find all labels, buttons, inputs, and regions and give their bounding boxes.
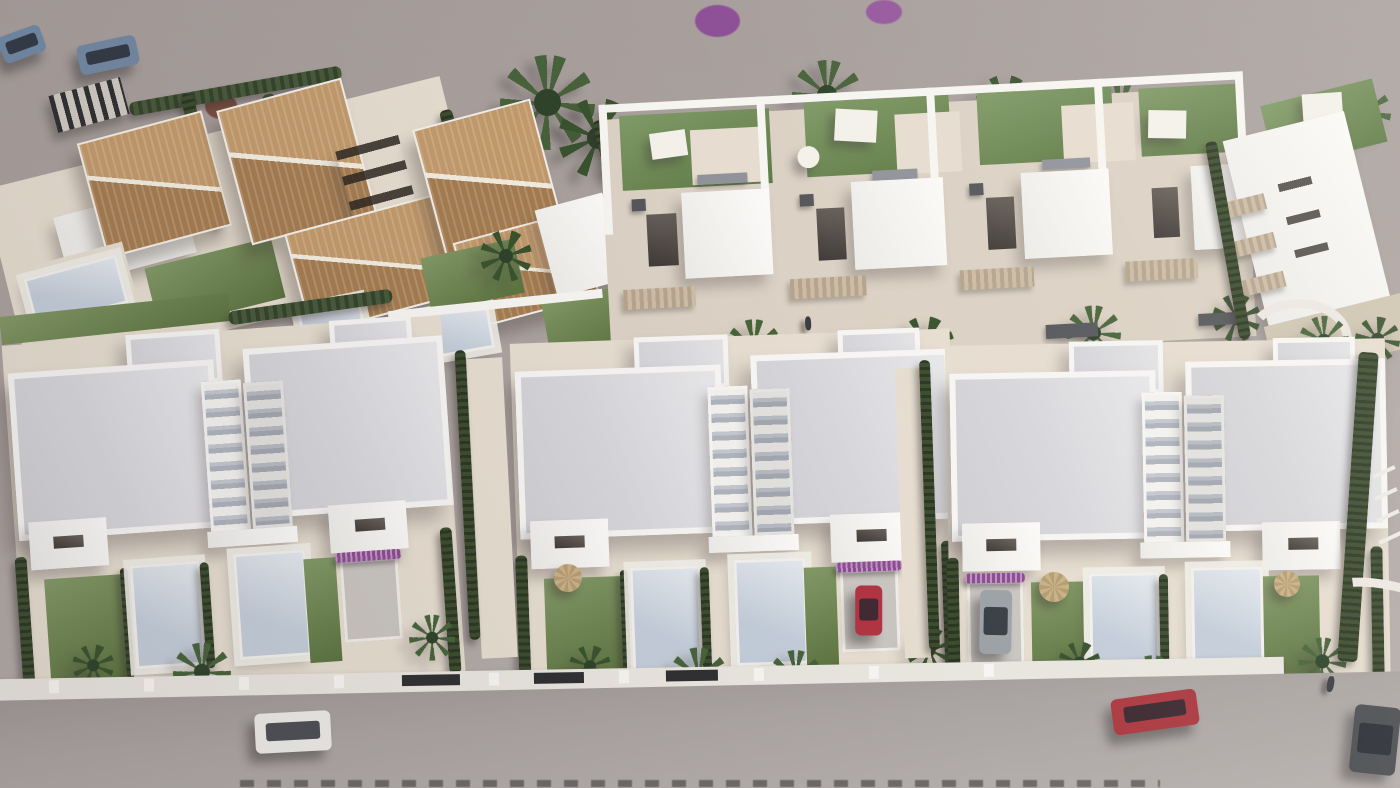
stairwell-void [816, 207, 847, 260]
upper-volume [851, 177, 947, 270]
pergola-roof [48, 77, 129, 133]
balcony-planter [1125, 258, 1198, 282]
balcony-planter [623, 286, 696, 310]
stairwell-void [646, 213, 679, 266]
stair-landing [709, 534, 800, 553]
person-courtyard [805, 316, 812, 330]
upper-volume [1021, 168, 1113, 258]
villa-roof-left [949, 370, 1158, 542]
aerial-render [0, 0, 1400, 788]
bougainvillea-shrub [695, 5, 740, 37]
stairwell-void [986, 196, 1017, 249]
dining-table [1046, 322, 1099, 339]
bottom-edge-artifact [240, 780, 1160, 787]
bbq-unit [969, 183, 984, 196]
gate-wall-dark [402, 674, 460, 686]
gate-pillar [489, 672, 499, 685]
skylight [856, 529, 886, 542]
exterior-stairs [707, 386, 752, 537]
stairwell-void [1152, 187, 1181, 238]
bougainvillea-shrub [866, 0, 902, 24]
balcony-planter [790, 275, 867, 299]
gate-pillar [619, 670, 629, 683]
bbq-unit [799, 194, 814, 207]
skylight [53, 535, 84, 549]
car-red-carport [855, 585, 882, 635]
gate-pillar [754, 668, 764, 681]
palm-tree [480, 230, 532, 282]
gate-pillar [869, 666, 879, 679]
gate-pillar [334, 675, 344, 688]
gate-pillar [49, 680, 59, 693]
car-white-road [254, 710, 332, 754]
white-umbrella [1148, 110, 1186, 139]
bougainvillea-planter [965, 573, 1025, 584]
villa-pool [233, 549, 312, 660]
dining-table [1198, 312, 1239, 326]
skylight [355, 518, 386, 532]
car-silver-driveway [979, 590, 1012, 655]
car-dark-parked [1349, 704, 1400, 776]
exterior-stairs [1184, 395, 1227, 542]
exterior-stairs [749, 388, 794, 535]
stair-landing [1140, 541, 1230, 559]
balcony-planter [960, 267, 1035, 291]
skylight [1288, 537, 1318, 550]
upper-volume [681, 188, 773, 278]
bbq-unit [631, 199, 646, 212]
gate-pillar [144, 678, 154, 691]
gate-pillar [239, 677, 249, 690]
driveway [340, 557, 404, 643]
villa-roof-left [8, 359, 225, 541]
villa-roof-left [515, 365, 727, 540]
villa-block-a [0, 313, 472, 715]
gate-pillar [984, 664, 994, 677]
white-umbrella [834, 109, 878, 143]
skylight [554, 535, 584, 548]
gate-wall-dark [666, 670, 718, 682]
skylight [986, 539, 1016, 552]
white-umbrella [649, 129, 688, 160]
exterior-stairs [1142, 392, 1185, 543]
gate-wall-dark [534, 672, 584, 684]
